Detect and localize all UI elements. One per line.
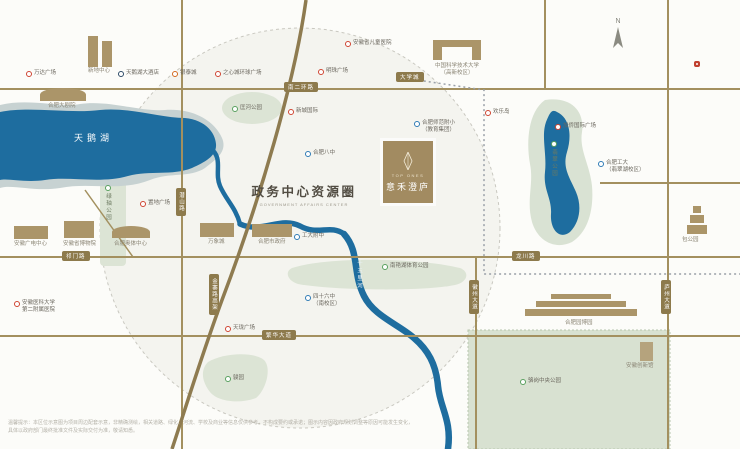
pagoda-base	[687, 225, 707, 234]
road-badge-qimen: 祁门路	[62, 251, 90, 261]
poi-feicui-park: 翡翠公园	[550, 140, 558, 177]
label-museum: 安徽省博物院	[63, 241, 96, 248]
poi-label-line1: 合肥师范附小	[422, 120, 455, 127]
building-grand-theater	[40, 88, 86, 101]
building-olympic-center	[112, 226, 150, 238]
red-marker-icon	[345, 41, 351, 47]
red-marker-icon	[140, 201, 146, 207]
building-pagoda	[684, 206, 710, 234]
label-baogongyuan: 包公园	[682, 237, 699, 244]
compass-north-label: N	[606, 18, 630, 25]
poi-label: 南艳湖体育公园	[390, 263, 429, 270]
poi-tianlong-plaza: 天珑广场	[225, 325, 255, 332]
sports-park-shape	[288, 260, 467, 290]
blue-marker-icon	[598, 161, 604, 167]
poi-label-line2: 第二附属医院	[22, 307, 55, 314]
red-marker-icon	[26, 71, 32, 77]
project-logo: TOP ONES 意禾澄庐	[383, 141, 433, 203]
poi-label: 合肥八中	[313, 150, 335, 157]
map-subtitle: GOVERNMENT AFFAIRS CENTER	[244, 202, 364, 207]
poi-xincheng: 新城国际	[288, 108, 318, 115]
poi-label-line1: 合肥工大	[606, 160, 645, 167]
red-marker-icon	[288, 109, 294, 115]
building-ustc-gate	[433, 40, 481, 60]
poi-label-line2: （翡翠湖校区）	[606, 167, 645, 174]
poi-label: 置地广场	[148, 200, 170, 207]
road-badge-qianshan: 潜山路	[176, 188, 186, 216]
palace-base	[525, 309, 637, 316]
red-marker-icon	[485, 110, 491, 116]
poi-label: 骏园	[233, 375, 244, 382]
label-tv-center: 安徽广电中心	[14, 241, 47, 248]
poi-shifan-fuxiao: 合肥师范附小 （教育集团）	[414, 120, 455, 133]
building-yuanboyuan-palace	[525, 294, 637, 316]
poi-luogang-central-park: 骆岗中央公园	[520, 378, 561, 385]
navy-marker-icon	[118, 71, 124, 77]
building-museum	[64, 221, 94, 238]
road-badge-nanerhuan: 南二环路	[284, 82, 318, 92]
poi-nanyanhu-sports-park: 南艳湖体育公园	[382, 263, 429, 270]
poi-children-hospital: 安徽省儿童医院	[345, 40, 392, 47]
poi-wanda-plaza: 万达广场	[26, 70, 56, 77]
diamond-leaf-icon	[402, 152, 414, 170]
poi-zhidi-plaza: 置地广场	[140, 200, 170, 207]
poi-label: 万达广场	[34, 70, 56, 77]
poi-green-axis-park: 绿轴公园	[104, 184, 112, 221]
park-label: 翡翠公园	[550, 149, 558, 177]
blue-marker-icon	[305, 151, 311, 157]
poi-junyuan: 骏园	[225, 375, 244, 382]
poi-label: 天鹅湖大酒店	[126, 70, 159, 77]
poi-label: 天珑广场	[233, 325, 255, 332]
location-map: 南二环路 祁门路 繁华大道 龙川路 大学城 潜山路 金寨路高架 徽州大道 庐州大…	[0, 0, 740, 449]
building-city-government	[252, 224, 292, 237]
poi-label: 新城国际	[296, 108, 318, 115]
disclaimer-line2: 具体以政府部门最终批准文件及实际交付为准，敬请知悉。	[8, 427, 138, 434]
blue-marker-icon	[305, 295, 311, 301]
poi-label-line1: 四十六中	[313, 294, 341, 301]
red-marker-icon	[555, 124, 561, 130]
poi-kuanghe-park: 匡河公园	[232, 105, 262, 112]
building-innovation-hall	[640, 342, 653, 361]
label-ustc-line1: 中国科学技术大学	[418, 63, 496, 70]
disclaimer-line1: 温馨提示：本区位示意图为项目周边配套示意，非精确测绘，相关道路、绿化、河流、学校…	[8, 419, 413, 426]
green-marker-icon	[520, 379, 526, 385]
label-olympic-center: 合肥奥体中心	[114, 241, 147, 248]
poi-label: 骆岗中央公园	[528, 378, 561, 385]
building-mixc	[200, 223, 234, 237]
blue-marker-icon	[414, 121, 420, 127]
poi-anyida-hospital: 安徽医科大学 第二附属医院	[14, 300, 55, 313]
map-canvas	[0, 0, 740, 449]
poi-unnamed-marker	[694, 61, 700, 67]
poi-label: 加侨国际广场	[563, 123, 596, 130]
park-label: 绿轴公园	[104, 193, 112, 221]
blue-marker-icon	[294, 234, 300, 240]
logo-latin-text: TOP ONES	[392, 173, 425, 178]
poi-zhixin-plaza: 之心城环球广场	[215, 70, 262, 77]
label-city-government: 合肥市政府	[258, 239, 286, 246]
green-marker-icon	[105, 185, 111, 191]
orange-marker-icon	[172, 71, 178, 77]
pagoda-mid	[690, 215, 704, 223]
label-xindi-center: 新地中心	[88, 68, 110, 75]
poi-label-line2: （教育集团）	[422, 127, 455, 134]
green-marker-icon	[232, 106, 238, 112]
road-badge-luzhou: 庐州大道	[661, 280, 671, 314]
poi-label-line2: （南校区）	[313, 301, 341, 308]
label-grand-theater: 合肥大剧院	[48, 103, 76, 110]
poi-gongda-fuzhong: 工大附中	[294, 233, 324, 240]
road-badge-jinzhai-viaduct: 金寨路高架	[209, 274, 219, 315]
poi-swan-lake-hotel: 天鹅湖大酒店	[118, 70, 159, 77]
poi-mingzhu-plaza: 明珠广场	[318, 68, 348, 75]
building-xindi-tower-a	[88, 36, 98, 67]
compass-arrow-icon	[606, 26, 630, 50]
palace-roof	[551, 294, 611, 299]
poi-hefei-no8: 合肥八中	[305, 150, 335, 157]
red-marker-icon	[225, 326, 231, 332]
poi-huanledao: 欢乐岛	[485, 109, 510, 116]
poi-label: 银泰城	[180, 70, 197, 77]
green-marker-icon	[225, 376, 231, 382]
poi-label-line1: 安徽医科大学	[22, 300, 55, 307]
compass: N	[606, 18, 630, 55]
swan-lake-label: 天鹅湖	[74, 131, 113, 144]
green-marker-icon	[382, 264, 388, 270]
label-yuanboyuan: 合肥园博园	[565, 320, 593, 327]
road-badge-huizhou: 徽州大道	[469, 280, 479, 314]
building-tv-center	[14, 226, 48, 239]
road-badge-longchuan: 龙川路	[512, 251, 540, 261]
palace-mid	[536, 301, 626, 307]
poi-no46-school: 四十六中 （南校区）	[305, 294, 341, 307]
red-marker-icon	[318, 69, 324, 75]
building-xindi-tower-b	[102, 41, 112, 67]
pagoda-top	[693, 206, 701, 213]
road-badge-fanhua: 繁华大道	[262, 330, 296, 340]
map-title: 政务中心资源圈	[244, 181, 364, 200]
poi-yintai-city: 银泰城	[172, 70, 197, 77]
poi-jiaqiao-plaza: 加侨国际广场	[555, 123, 596, 130]
red-marker-icon	[14, 301, 20, 307]
swan-lake-shape	[0, 109, 216, 181]
poi-label: 欢乐岛	[493, 109, 510, 116]
poi-hfut-feicui: 合肥工大 （翡翠湖校区）	[598, 160, 645, 173]
poi-label: 之心城环球广场	[223, 70, 262, 77]
green-marker-icon	[551, 141, 557, 147]
map-title-block: 政务中心资源圈 GOVERNMENT AFFAIRS CENTER	[244, 181, 364, 207]
logo-project-name: 意禾澄庐	[386, 180, 430, 193]
poi-label: 明珠广场	[326, 68, 348, 75]
poi-label: 匡河公园	[240, 105, 262, 112]
red-square-marker-icon	[694, 61, 700, 67]
red-marker-icon	[215, 71, 221, 77]
poi-label: 工大附中	[302, 233, 324, 240]
poi-label: 安徽省儿童医院	[353, 40, 392, 47]
label-innovation-hall: 安徽创新馆	[626, 363, 654, 370]
label-ustc-line2: （高新校区）	[418, 70, 496, 77]
label-mixc: 万象城	[208, 239, 225, 246]
shiwuli-river-label: 十五里河	[355, 260, 363, 290]
